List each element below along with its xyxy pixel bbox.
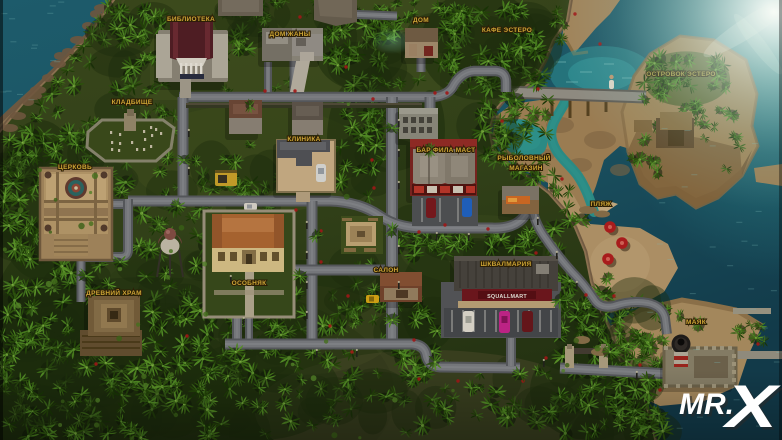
svg-text:X: X: [721, 373, 781, 440]
